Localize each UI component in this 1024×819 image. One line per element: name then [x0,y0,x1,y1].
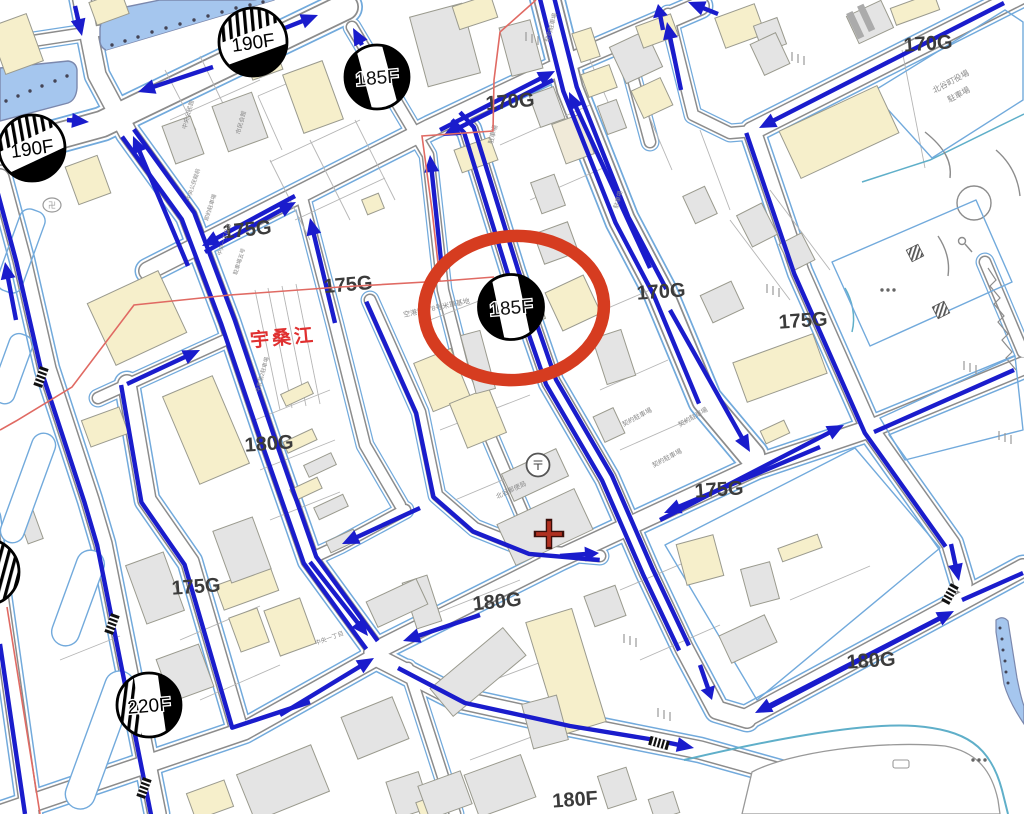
svg-text:170G: 170G [903,31,953,56]
svg-text:180F: 180F [552,787,599,812]
svg-text:220F: 220F [127,694,172,719]
svg-text:170G: 170G [485,89,536,115]
svg-text:180G: 180G [244,431,294,456]
svg-text:185F: 185F [489,296,534,321]
svg-text:185F: 185F [355,66,400,91]
svg-text:170G: 170G [636,279,686,304]
svg-text:〒: 〒 [531,458,544,473]
svg-text:卍: 卍 [48,201,56,210]
svg-text:180G: 180G [846,648,896,673]
svg-text:175G: 175G [778,308,828,333]
svg-text:175G: 175G [171,574,221,599]
svg-text:175G: 175G [694,477,744,502]
